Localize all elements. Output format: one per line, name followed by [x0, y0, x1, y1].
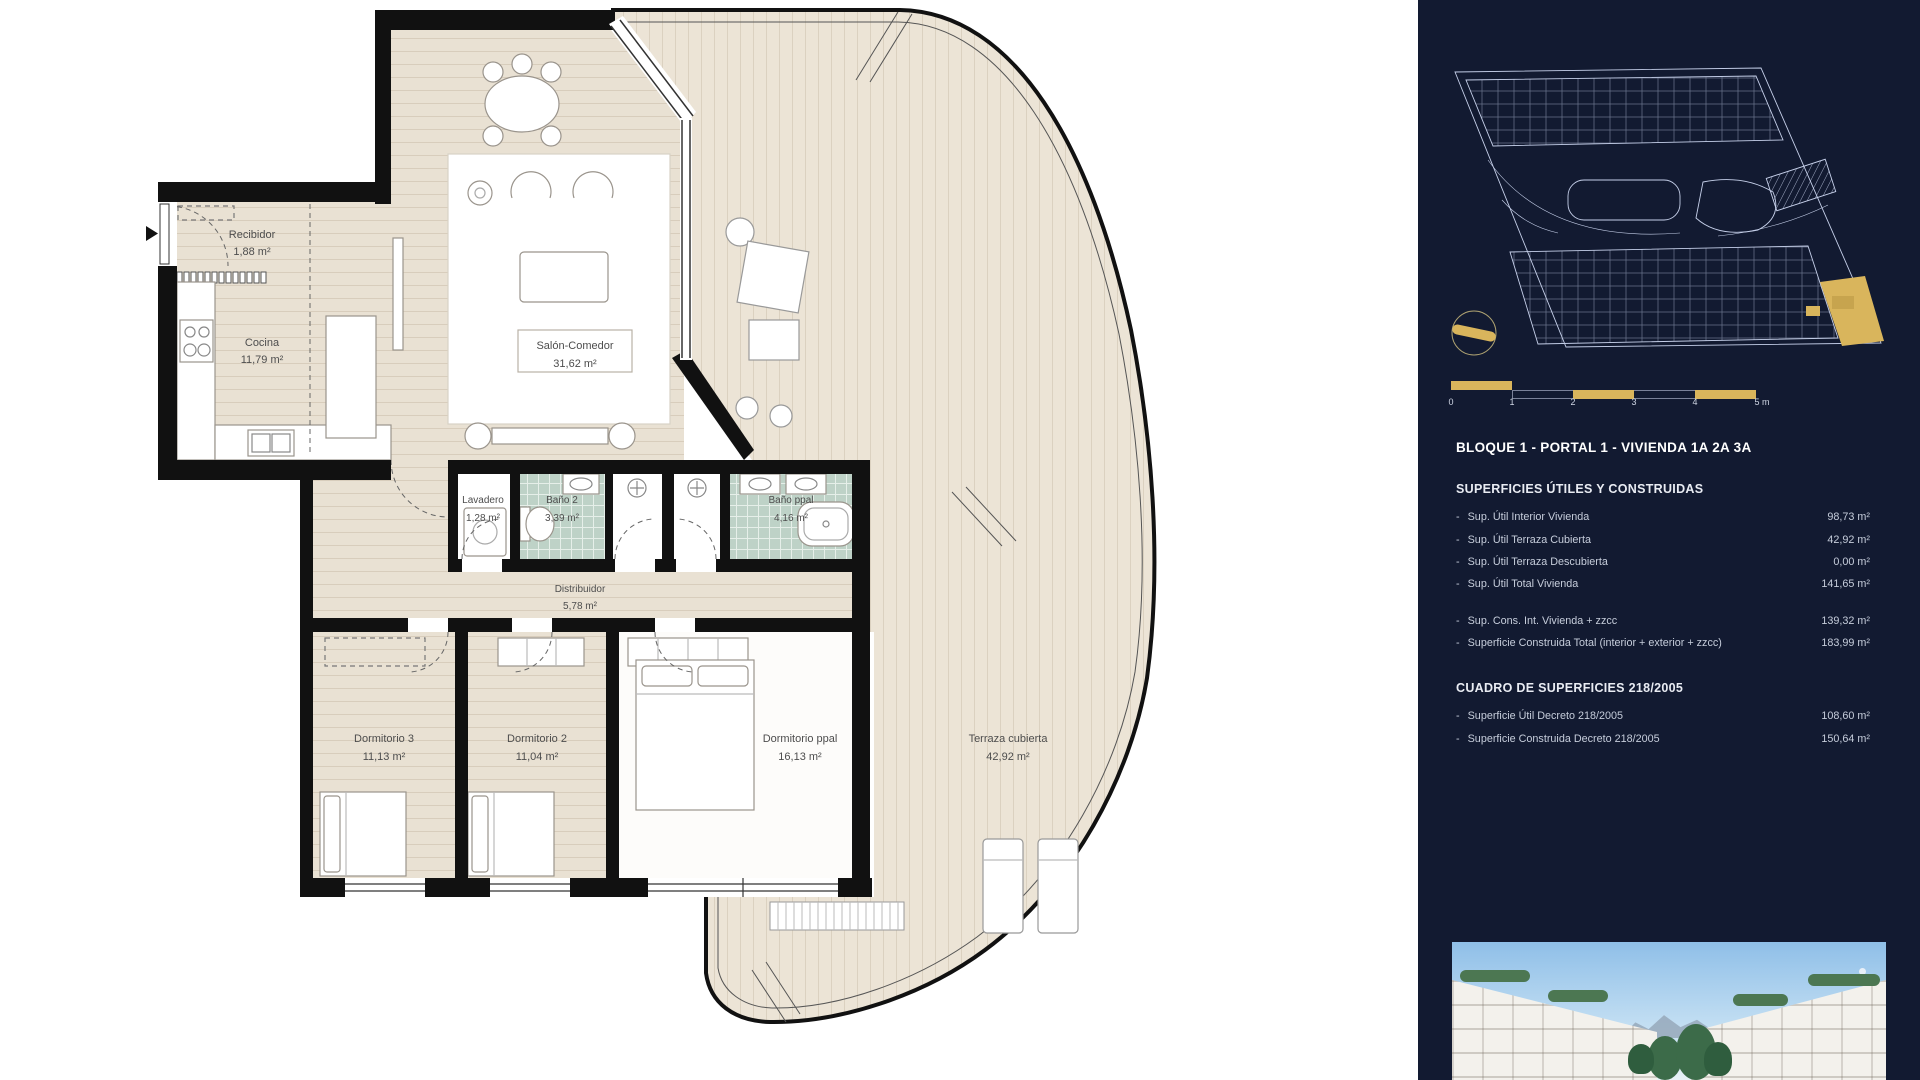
kitchen-island — [326, 316, 376, 438]
area-dorm2: 11,04 m² — [516, 751, 559, 763]
cuadro-rows: -Superficie Útil Decreto 218/2005 108,60… — [1456, 705, 1870, 750]
floor-plan-drawing: Recibidor 1,88 m² Cocina 11,79 m² Salón-… — [0, 0, 1418, 1080]
roof-greenery — [1808, 974, 1880, 986]
area-dorm3: 11,13 m² — [363, 751, 406, 763]
scale-tick: 0 — [1448, 397, 1453, 407]
label-recibidor: Recibidor — [229, 229, 276, 241]
row-label: Sup. Útil Interior Vivienda — [1468, 511, 1590, 523]
label-lavadero: Lavadero — [462, 495, 504, 506]
row-label: Sup. Útil Terraza Descubierta — [1468, 556, 1608, 568]
label-banoppal: Baño ppal — [768, 495, 813, 506]
section-heading-cuadro: CUADRO DE SUPERFICIES 218/2005 — [1456, 681, 1870, 695]
scale-tick: 2 — [1570, 397, 1575, 407]
row-label: Sup. Cons. Int. Vivienda + zzcc — [1468, 615, 1618, 627]
area-cocina: 11,79 m² — [241, 354, 284, 366]
scale-segment — [1695, 390, 1756, 399]
scale-bar: 0 1 2 3 4 5 m — [1451, 381, 1781, 415]
palm-tree — [1704, 1042, 1732, 1076]
terrace-planter — [770, 902, 904, 930]
coffee-table — [520, 252, 608, 302]
row-bullet: - — [1456, 615, 1460, 627]
scale-segment — [1573, 390, 1634, 399]
roof-greenery — [1460, 970, 1530, 982]
area-terraza: 42,92 m² — [986, 751, 1030, 763]
bed-dorm2 — [468, 792, 554, 876]
label-dormppal: Dormitorio ppal — [763, 733, 838, 745]
row-label: Sup. Útil Total Vivienda — [1468, 578, 1579, 590]
unit-title: BLOQUE 1 - PORTAL 1 - VIVIENDA 1A 2A 3A — [1456, 440, 1870, 455]
area-distribuidor: 5,78 m² — [563, 601, 598, 612]
table-row: -Superficie Útil Decreto 218/2005 108,60… — [1456, 705, 1870, 727]
building-render-photo — [1452, 942, 1886, 1080]
row-bullet: - — [1456, 556, 1460, 568]
row-bullet: - — [1456, 578, 1460, 590]
table-row: -Sup. Cons. Int. Vivienda + zzcc 139,32 … — [1456, 610, 1870, 632]
row-value: 0,00 m² — [1833, 556, 1870, 568]
floor-plan-sheet: Recibidor 1,88 m² Cocina 11,79 m² Salón-… — [0, 0, 1418, 1080]
row-value: 139,32 m² — [1821, 615, 1870, 627]
bed-master — [636, 660, 754, 810]
table-row: -Sup. Útil Terraza Cubierta 42,92 m² — [1456, 528, 1870, 550]
row-value: 42,92 m² — [1827, 534, 1870, 546]
scale-tick: 1 — [1509, 397, 1514, 407]
scale-tick: 3 — [1631, 397, 1636, 407]
label-terraza: Terraza cubierta — [969, 733, 1049, 745]
scale-segment — [1451, 381, 1512, 390]
row-label: Superficie Construida Total (interior + … — [1468, 637, 1722, 649]
row-label: Sup. Útil Terraza Cubierta — [1468, 534, 1591, 546]
row-value: 141,65 m² — [1821, 578, 1870, 590]
label-dorm2: Dormitorio 2 — [507, 733, 567, 745]
info-sidebar: 0 1 2 3 4 5 m BLOQUE 1 - PORTAL 1 - VIVI… — [1418, 0, 1920, 1080]
label-dorm3: Dormitorio 3 — [354, 733, 414, 745]
label-bano2: Baño 2 — [546, 495, 578, 506]
site-plan-map — [1418, 0, 1920, 360]
area-lavadero: 1,28 m² — [466, 513, 501, 524]
row-value: 183,99 m² — [1821, 637, 1870, 649]
area-dormppal: 16,13 m² — [778, 751, 822, 763]
scale-tick: 4 — [1692, 397, 1697, 407]
area-recibidor: 1,88 m² — [233, 246, 271, 258]
row-bullet: - — [1456, 733, 1460, 745]
north-compass-icon — [1451, 311, 1496, 355]
table-row: -Superficie Construida Decreto 218/2005 … — [1456, 728, 1870, 750]
section-heading-superficies: SUPERFICIES ÚTILES Y CONSTRUIDAS — [1456, 482, 1870, 496]
area-bano2: 3,39 m² — [545, 513, 580, 524]
row-value: 108,60 m² — [1821, 710, 1870, 722]
label-cocina: Cocina — [245, 337, 280, 349]
roof-greenery — [1733, 994, 1788, 1006]
tv-sideboard — [393, 238, 403, 350]
roof-greenery — [1548, 990, 1608, 1002]
row-label: Superficie Construida Decreto 218/2005 — [1468, 733, 1660, 745]
palm-tree — [1628, 1044, 1654, 1074]
area-salon: 31,62 m² — [553, 358, 597, 370]
superficies-rows: -Sup. Útil Interior Vivienda 98,73 m² -S… — [1456, 506, 1870, 654]
surface-details: BLOQUE 1 - PORTAL 1 - VIVIENDA 1A 2A 3A … — [1456, 440, 1870, 750]
table-row: -Sup. Útil Terraza Descubierta 0,00 m² — [1456, 551, 1870, 573]
row-bullet: - — [1456, 710, 1460, 722]
row-bullet: - — [1456, 637, 1460, 649]
area-banoppal: 4,16 m² — [774, 513, 809, 524]
bed-dorm3 — [320, 792, 406, 876]
scale-tick: 5 m — [1754, 397, 1769, 407]
wardrobe-dorm2 — [498, 638, 584, 666]
table-row: -Sup. Útil Interior Vivienda 98,73 m² — [1456, 506, 1870, 528]
row-value: 98,73 m² — [1827, 511, 1870, 523]
entry-door-leaf — [160, 204, 169, 264]
row-bullet: - — [1456, 534, 1460, 546]
label-salon: Salón-Comedor — [536, 340, 613, 352]
row-bullet: - — [1456, 511, 1460, 523]
label-distribuidor: Distribuidor — [555, 584, 606, 595]
dining-table — [483, 54, 561, 146]
row-label: Superficie Útil Decreto 218/2005 — [1468, 710, 1623, 722]
table-row: -Superficie Construida Total (interior +… — [1456, 632, 1870, 654]
table-row: -Sup. Útil Total Vivienda 141,65 m² — [1456, 573, 1870, 595]
row-value: 150,64 m² — [1821, 733, 1870, 745]
site-plan-outline — [1455, 68, 1881, 347]
entry-arrow-icon — [146, 226, 158, 241]
